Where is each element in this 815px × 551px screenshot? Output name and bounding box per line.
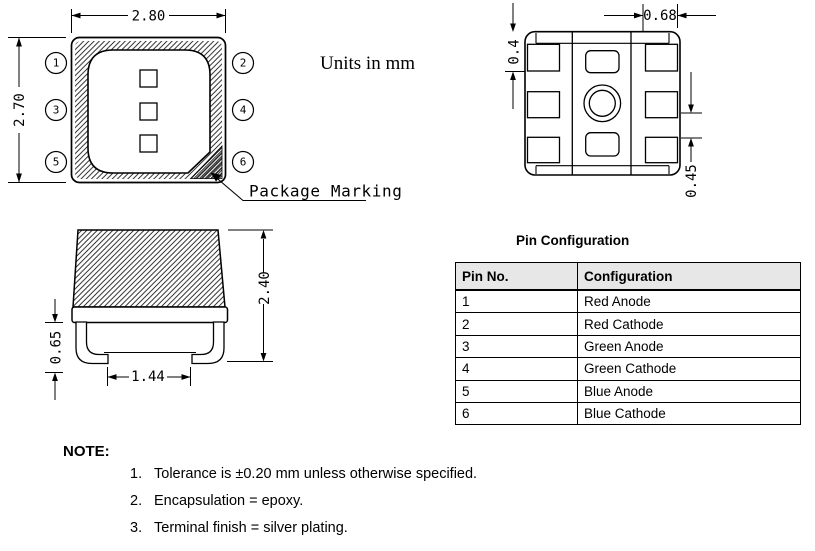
pin-no-cell: 2 [456,313,578,335]
pin-table-header-configuration: Configuration [578,263,801,291]
dim-standoff-value: 0.65 [49,331,65,365]
package-base-band [72,307,228,323]
dim-lead-span-value: 1.44 [131,369,165,385]
dim-pad-gap: 0.45 [681,72,702,198]
pin-table-header-row: Pin No. Configuration [456,263,801,291]
led-die-red [140,70,157,87]
pin-table-header-pin-no: Pin No. [456,263,578,291]
note-item: 3. Terminal finish = silver plating. [130,520,477,536]
dim-top-height-value: 2.70 [12,93,28,127]
pin-configuration-table: Pin No. Configuration 1 Red Anode 2 Red … [455,262,801,425]
table-row: 1 Red Anode [456,290,801,313]
note-text: Tolerance is ±0.20 mm unless otherwise s… [154,466,477,482]
dim-lead-span: 1.44 [108,367,191,386]
units-note: Units in mm [320,53,415,75]
dim-pad-width-value: 0.4 [507,39,523,64]
led-die-blue [140,135,157,152]
table-row: 6 Blue Cathode [456,402,801,424]
note-item: 2. Encapsulation = epoxy. [130,493,477,509]
pin-1-label: 1 [53,57,60,70]
pin-no-cell: 3 [456,335,578,357]
note-number: 3. [130,520,147,536]
pin-4-label: 4 [240,104,247,117]
pin-2-label: 2 [240,57,247,70]
led-die-green [140,103,157,120]
side-view-drawing: 0.65 1.44 2.40 [20,215,300,411]
epoxy-body-hatch [73,230,225,307]
note-text: Terminal finish = silver plating. [154,520,348,536]
configuration-cell: Red Cathode [578,313,801,335]
table-row: 5 Blue Anode [456,380,801,402]
package-side-outline [72,230,228,364]
notes-list: 1. Tolerance is ±0.20 mm unless otherwis… [130,466,477,547]
package-marking-label: Package Marking [249,182,403,201]
table-row: 2 Red Cathode [456,313,801,335]
dim-pad-width: 0.4 [505,3,527,109]
pin-no-cell: 5 [456,380,578,402]
dim-top-width: 2.80 [72,9,226,34]
lead-left [76,322,108,364]
led-package-drawing-page: 2.80 2.70 1 2 3 4 [0,0,815,551]
configuration-cell: Green Anode [578,335,801,357]
notes-label: NOTE: [63,443,110,460]
note-item: 1. Tolerance is ±0.20 mm unless otherwis… [130,466,477,482]
note-text: Encapsulation = epoxy. [154,493,303,509]
top-view-drawing: 2.80 2.70 1 2 3 4 [0,0,430,215]
dim-total-height: 2.40 [227,230,273,362]
pin-5-label: 5 [53,156,60,169]
table-row: 3 Green Anode [456,335,801,357]
dim-total-height-value: 2.40 [257,271,273,305]
dim-top-width-value: 2.80 [132,9,166,25]
note-number: 1. [130,466,147,482]
dim-standoff: 0.65 [45,299,65,400]
center-pad-features [584,51,621,156]
bottom-view-drawing: 0.68 0.4 [480,0,815,212]
configuration-cell: Blue Cathode [578,402,801,424]
pin-3-label: 3 [53,104,60,117]
table-row: 4 Green Cathode [456,358,801,380]
pin-6-label: 6 [240,156,247,169]
pin-no-cell: 1 [456,290,578,313]
package-top-outline [72,38,226,183]
dim-pad-gap-value: 0.45 [684,164,700,198]
package-bottom-outline [525,32,680,175]
lead-right [192,322,224,364]
dim-pad-length-value: 0.68 [643,8,677,24]
pin-no-cell: 4 [456,358,578,380]
configuration-cell: Green Cathode [578,358,801,380]
package-marking-callout: Package Marking [211,173,403,201]
pin-no-cell: 6 [456,402,578,424]
configuration-cell: Red Anode [578,290,801,313]
pin-table-title: Pin Configuration [516,233,629,248]
note-number: 2. [130,493,147,509]
configuration-cell: Blue Anode [578,380,801,402]
